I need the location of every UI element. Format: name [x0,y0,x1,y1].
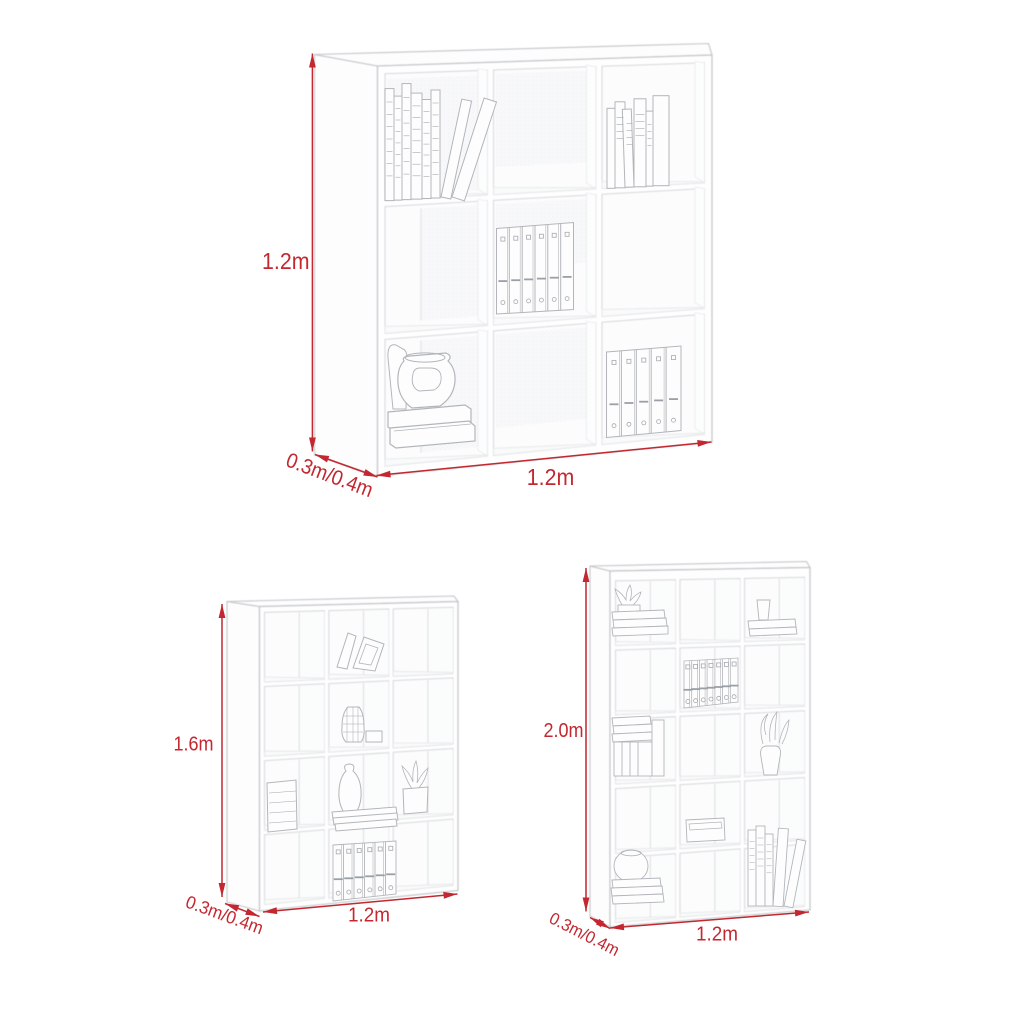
svg-text:1.2m: 1.2m [262,248,310,274]
svg-text:1.2m: 1.2m [527,464,575,490]
svg-text:1.2m: 1.2m [696,923,738,946]
svg-text:1.2m: 1.2m [348,904,390,927]
svg-text:2.0m: 2.0m [544,719,584,742]
svg-text:1.6m: 1.6m [174,733,214,756]
